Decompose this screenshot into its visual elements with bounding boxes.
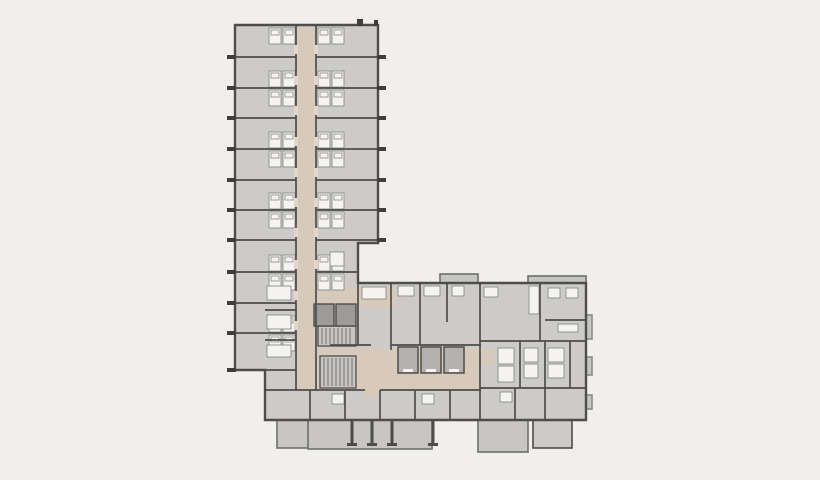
bed-pillow [285, 134, 293, 139]
bed-pillow [285, 153, 293, 158]
bed-pillow [320, 214, 328, 219]
bed-pillow [285, 214, 293, 219]
door-opening [314, 45, 318, 54]
bed-pillow [320, 195, 328, 200]
bed-pillow [271, 214, 279, 219]
bed-pillow [285, 73, 293, 78]
wall-tick [377, 147, 386, 151]
door-opening [294, 198, 298, 207]
wall-tick [227, 208, 236, 212]
door-opening [294, 260, 298, 269]
bed-pillow [271, 257, 279, 262]
fixture [267, 345, 291, 357]
door-opening [294, 45, 298, 54]
wall-tick [377, 208, 386, 212]
bed-pillow [320, 257, 328, 262]
wall-tick [227, 178, 236, 182]
elevator-door [426, 369, 436, 372]
wall-tick [227, 86, 236, 90]
bed-pillow [271, 30, 279, 35]
fixture [500, 392, 512, 402]
wall-tick [227, 331, 236, 335]
door-opening [294, 137, 298, 146]
bed-pillow [334, 276, 342, 281]
balcony-post-foot [387, 443, 397, 446]
corridor [296, 28, 316, 390]
corridor [365, 390, 380, 398]
door-opening [314, 168, 318, 177]
door-opening [314, 106, 318, 115]
fixture [267, 286, 291, 300]
wall-tick [377, 178, 386, 182]
fixture [484, 287, 498, 297]
service-shaft [314, 304, 334, 326]
fixture [330, 252, 344, 266]
fixture [267, 315, 291, 329]
door-opening [314, 76, 318, 85]
door-opening [314, 228, 318, 237]
bed-pillow [271, 153, 279, 158]
door-opening [294, 76, 298, 85]
bed-pillow [320, 92, 328, 97]
bed-pillow [285, 195, 293, 200]
wall-tick [377, 55, 386, 59]
wall-tick [377, 116, 386, 120]
wall-tick [227, 147, 236, 151]
fixture [424, 286, 440, 296]
wall-tick [377, 238, 386, 242]
fixture [524, 364, 538, 378]
bed-pillow [271, 134, 279, 139]
bed-pillow [271, 195, 279, 200]
bed-pillow [320, 134, 328, 139]
fixture [498, 366, 514, 382]
wall-tick [227, 238, 236, 242]
stair-core [320, 356, 356, 388]
bed-pillow [334, 214, 342, 219]
fixture [548, 348, 564, 362]
fixture [332, 394, 344, 404]
bed-pillow [334, 30, 342, 35]
service-shaft [336, 304, 356, 326]
bed-pillow [285, 276, 293, 281]
bed-pillow [320, 30, 328, 35]
wall-tick [357, 19, 363, 26]
bed-pillow [334, 92, 342, 97]
fixture [362, 287, 386, 299]
floor-plan-svg [0, 0, 820, 480]
fixture [548, 288, 560, 298]
fixture [422, 394, 434, 404]
elevator-door [449, 369, 459, 372]
floor-plan-canvas [0, 0, 820, 480]
bed-pillow [271, 276, 279, 281]
bed-pillow [334, 195, 342, 200]
wall-tick [377, 86, 386, 90]
wall-tick [374, 20, 378, 26]
elevator-door [403, 369, 413, 372]
bed-pillow [334, 134, 342, 139]
balcony-post-foot [428, 443, 438, 446]
wall-tick [227, 368, 236, 372]
bed-pillow [285, 30, 293, 35]
wall-tick [227, 55, 236, 59]
bed-pillow [285, 257, 293, 262]
door-opening [314, 137, 318, 146]
fixture [566, 288, 578, 298]
bed-pillow [334, 153, 342, 158]
wall-tick [227, 301, 236, 305]
door-opening [294, 291, 298, 300]
fixture [452, 286, 464, 296]
door-opening [294, 321, 298, 330]
door-opening [294, 106, 298, 115]
door-opening [314, 198, 318, 207]
door-opening [294, 228, 298, 237]
fixture [558, 324, 578, 332]
wall-tick [227, 270, 236, 274]
bed-pillow [271, 92, 279, 97]
bed-pillow [320, 276, 328, 281]
fixture [498, 348, 514, 364]
door-opening [314, 260, 318, 269]
door-opening [294, 168, 298, 177]
wall-tick [227, 116, 236, 120]
fixture [398, 286, 414, 296]
bed-pillow [320, 153, 328, 158]
fixture [548, 364, 564, 378]
bed-pillow [285, 92, 293, 97]
corridor [481, 349, 495, 365]
bed-pillow [320, 73, 328, 78]
balcony-post-foot [367, 443, 377, 446]
fixture [529, 286, 539, 314]
fixture [524, 348, 538, 362]
bed-pillow [271, 73, 279, 78]
bed-pillow [334, 73, 342, 78]
balcony-post-foot [347, 443, 357, 446]
